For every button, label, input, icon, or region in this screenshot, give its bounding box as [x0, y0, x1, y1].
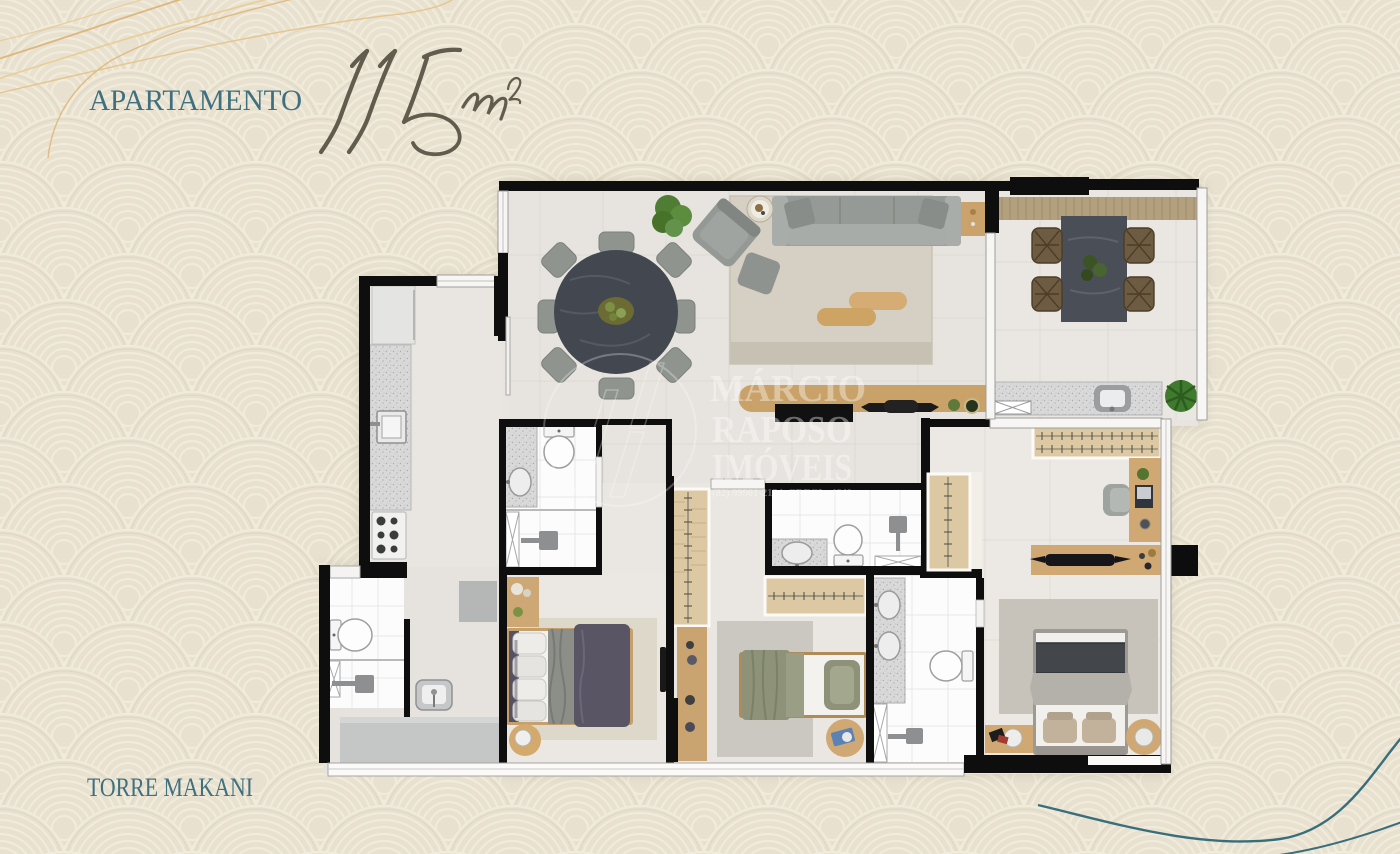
svg-text:RAPOSO: RAPOSO	[712, 409, 852, 451]
svg-text:APARTAMENTO: APARTAMENTO	[89, 84, 302, 117]
svg-text:MÁRCIO: MÁRCIO	[710, 368, 866, 410]
svg-text:TORRE MAKANI: TORRE MAKANI	[87, 773, 253, 802]
svg-text:(82) 99901-2134 CRECI - 4640: (82) 99901-2134 CRECI - 4640	[712, 487, 853, 499]
svg-text:IMÓVEIS: IMÓVEIS	[712, 447, 852, 489]
